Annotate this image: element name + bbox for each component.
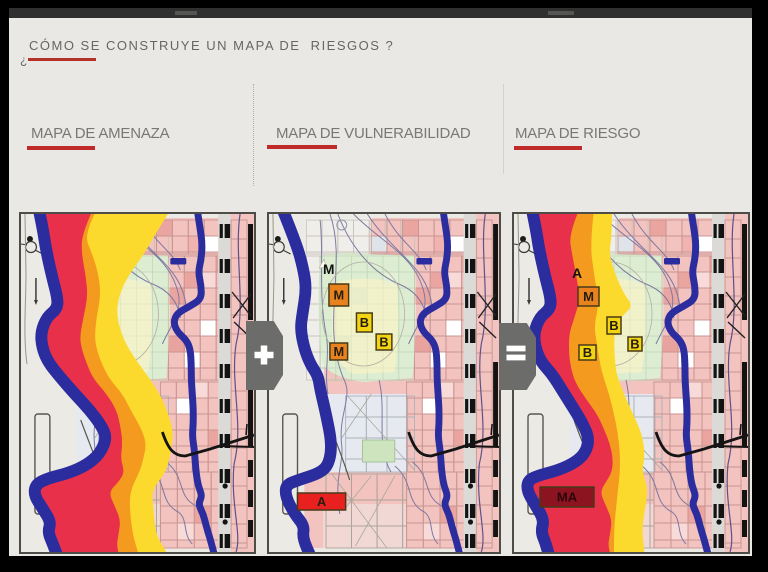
svg-text:B: B [609,318,618,333]
svg-text:M: M [333,288,344,303]
svg-text:A: A [572,265,582,281]
svg-text:B: B [360,315,369,330]
svg-text:B: B [379,335,388,350]
svg-text:B: B [630,337,639,352]
svg-text:M: M [333,344,344,359]
svg-text:B: B [583,345,592,360]
svg-text:M: M [583,289,594,304]
svg-text:MA: MA [557,490,578,505]
svg-text:A: A [317,494,326,509]
svg-text:M: M [323,261,334,277]
